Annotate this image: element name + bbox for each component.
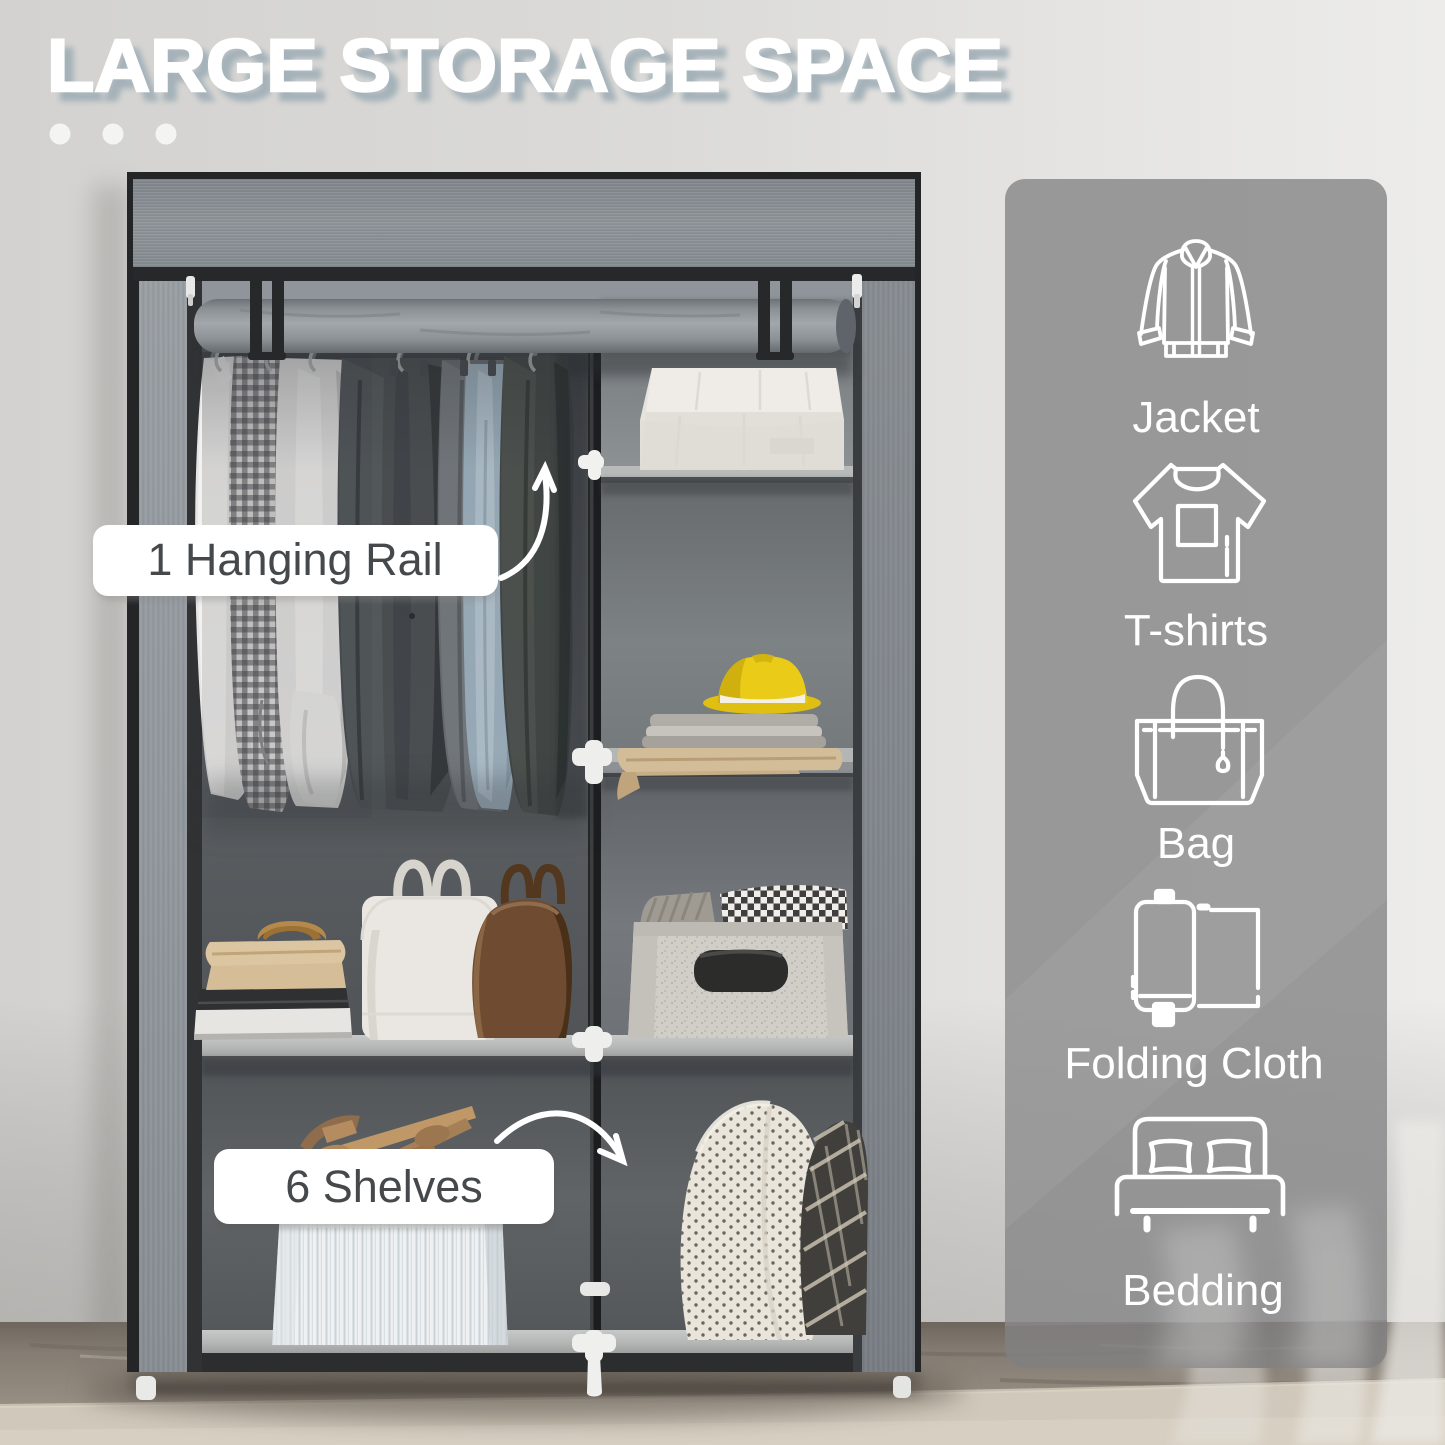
svg-text:6 Shelves: 6 Shelves	[285, 1161, 483, 1212]
svg-text:Bag: Bag	[1157, 819, 1235, 868]
svg-text:1 Hanging Rail: 1 Hanging Rail	[147, 534, 442, 585]
svg-text:Folding Cloth: Folding Cloth	[1064, 1039, 1323, 1088]
svg-text:T-shirts: T-shirts	[1124, 606, 1268, 655]
svg-text:Bedding: Bedding	[1122, 1266, 1283, 1315]
svg-text:LARGE STORAGE SPACE: LARGE STORAGE SPACE	[47, 24, 1003, 107]
svg-text:Jacket: Jacket	[1132, 393, 1259, 442]
